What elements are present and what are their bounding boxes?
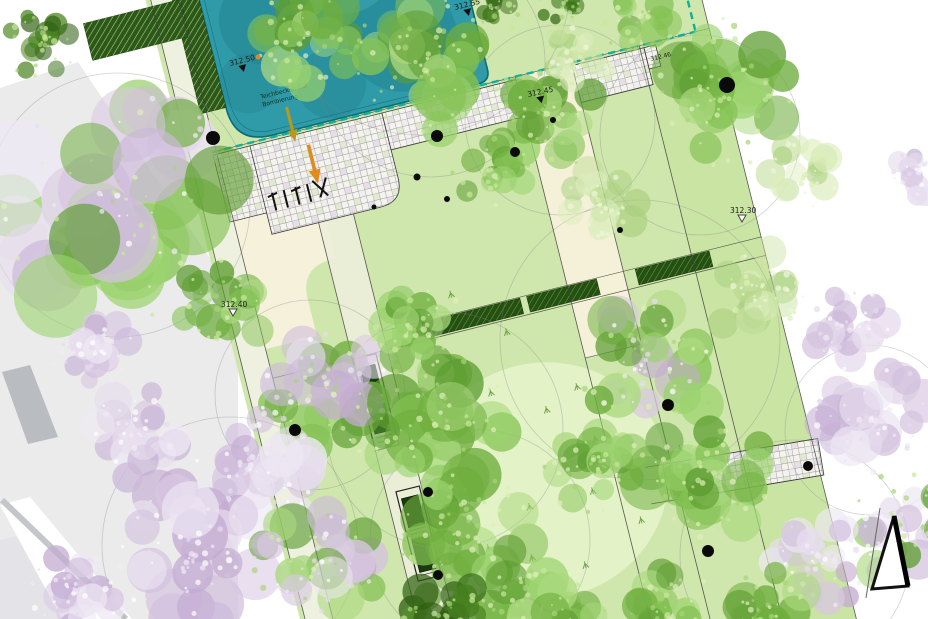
tree-blossom-speckle: [417, 353, 419, 355]
tree-blossom-speckle: [489, 4, 493, 8]
tree-blossom-speckle: [449, 484, 454, 489]
tree-blossom-speckle: [630, 613, 632, 615]
tree-blossom-speckle: [436, 360, 440, 364]
tree-blossom-speckle: [763, 81, 768, 86]
tree-blossom-speckle: [575, 36, 577, 38]
tree-blossom-speckle: [335, 378, 338, 381]
tree-blossom-speckle: [308, 368, 313, 373]
tree-blossom-speckle: [522, 507, 525, 510]
tree-blossom-speckle: [320, 560, 325, 565]
tree-blossom-speckle: [473, 536, 478, 541]
tree-foliage-blob: [892, 366, 921, 395]
tree-blossom-speckle: [64, 361, 67, 364]
tree-blossom-speckle: [821, 562, 824, 565]
tree-blossom-speckle: [132, 409, 138, 415]
tree-blossom-speckle: [853, 547, 859, 553]
tree-blossom-speckle: [606, 232, 610, 236]
tree-blossom-speckle: [47, 45, 50, 48]
tree-blossom-speckle: [438, 410, 442, 414]
tree-blossom-speckle: [111, 200, 115, 204]
tree-blossom-speckle: [96, 336, 100, 340]
tree-blossom-speckle: [759, 305, 761, 307]
tree-blossom-speckle: [814, 170, 816, 172]
tree-trunk-dot: [289, 424, 301, 436]
tree-blossom-speckle: [486, 180, 491, 185]
utility-dot: [256, 55, 261, 60]
tree-blossom-speckle: [791, 571, 794, 574]
tree-blossom-speckle: [193, 553, 199, 559]
tree-blossom-speckle: [640, 365, 643, 368]
tree-blossom-speckle: [813, 545, 818, 550]
tree-blossom-speckle: [743, 506, 748, 511]
tree-blossom-speckle: [114, 459, 119, 464]
tree-blossom-speckle: [682, 481, 686, 485]
tree-blossom-speckle: [356, 405, 360, 409]
tree-blossom-speckle: [120, 368, 124, 372]
tree-blossom-speckle: [428, 435, 432, 439]
tree-blossom-speckle: [122, 441, 127, 446]
tree-blossom-speckle: [299, 577, 303, 581]
tree-blossom-speckle: [770, 270, 776, 276]
tree-blossom-speckle: [572, 484, 578, 490]
tree-blossom-speckle: [726, 518, 730, 522]
tree-blossom-speckle: [436, 613, 441, 618]
tree-foliage-blob: [64, 558, 93, 587]
tree-blossom-speckle: [481, 171, 487, 177]
tree-blossom-speckle: [695, 478, 701, 484]
tree-blossom-speckle: [591, 457, 596, 462]
tree-blossom-speckle: [689, 107, 694, 112]
tree-blossom-speckle: [569, 76, 571, 78]
tree-blossom-speckle: [752, 599, 755, 602]
tree-blossom-speckle: [181, 569, 186, 574]
tree-blossom-speckle: [639, 369, 641, 371]
tree-blossom-speckle: [216, 331, 222, 337]
tree-blossom-speckle: [412, 328, 416, 332]
tree-blossom-speckle: [40, 26, 43, 29]
tree-blossom-speckle: [689, 496, 694, 501]
tree-blossom-speckle: [863, 515, 869, 521]
tree-blossom-speckle: [661, 318, 665, 322]
tree-blossom-speckle: [434, 35, 439, 40]
tree-blossom-speckle: [439, 513, 445, 519]
tree-blossom-speckle: [506, 485, 510, 489]
tree-blossom-speckle: [856, 306, 859, 309]
tree-blossom-speckle: [602, 509, 605, 512]
tree-blossom-speckle: [812, 205, 815, 208]
tree-blossom-speckle: [93, 356, 99, 362]
tree-blossom-speckle: [99, 349, 103, 353]
tree-blossom-speckle: [715, 450, 719, 454]
tree-blossom-speckle: [435, 307, 438, 310]
tree-blossom-speckle: [680, 362, 683, 365]
tree-blossom-speckle: [561, 22, 563, 24]
tree-blossom-speckle: [131, 445, 137, 451]
tree-blossom-speckle: [439, 521, 443, 525]
tree-blossom-speckle: [679, 579, 682, 582]
tree-blossom-speckle: [303, 597, 307, 601]
tree-blossom-speckle: [15, 69, 19, 73]
tree-foliage-blob: [743, 307, 764, 328]
tree-blossom-speckle: [54, 57, 57, 60]
tree-trunk-dot: [803, 461, 813, 471]
tree-blossom-speckle: [856, 417, 862, 423]
tree-blossom-speckle: [670, 389, 676, 395]
tree-blossom-speckle: [865, 333, 871, 339]
tree-blossom-speckle: [328, 424, 331, 427]
tree-blossom-speckle: [400, 429, 402, 431]
tree-blossom-speckle: [442, 347, 445, 350]
tree-blossom-speckle: [133, 233, 137, 237]
tree-blossom-speckle: [798, 159, 800, 161]
tree-blossom-speckle: [373, 324, 379, 330]
tree-blossom-speckle: [834, 578, 836, 580]
tree-blossom-speckle: [730, 283, 736, 289]
tree-blossom-speckle: [118, 409, 121, 412]
tree-blossom-speckle: [187, 566, 190, 569]
tree-blossom-speckle: [120, 420, 123, 423]
tree-blossom-speckle: [24, 21, 26, 23]
tree-blossom-speckle: [646, 404, 652, 410]
tree-blossom-speckle: [603, 206, 608, 211]
tree-blossom-speckle: [869, 553, 872, 556]
tree-blossom-speckle: [456, 48, 460, 52]
tree-blossom-speckle: [764, 259, 766, 261]
tree-blossom-speckle: [89, 345, 95, 351]
tree-blossom-speckle: [226, 551, 230, 555]
tree-blossom-speckle: [407, 513, 410, 516]
tree-blossom-speckle: [687, 520, 689, 522]
tree-blossom-speckle: [549, 157, 554, 162]
tree-blossom-speckle: [603, 610, 605, 612]
tree-foliage-blob: [185, 299, 213, 327]
tree-blossom-speckle: [203, 524, 209, 530]
tree-foliage-blob: [277, 55, 312, 90]
tree-blossom-speckle: [542, 465, 546, 469]
tree-blossom-speckle: [206, 507, 210, 511]
tree-blossom-speckle: [488, 603, 493, 608]
tree-blossom-speckle: [656, 610, 659, 613]
tree-blossom-speckle: [472, 421, 475, 424]
tree-blossom-speckle: [311, 567, 316, 572]
tree-blossom-speckle: [568, 203, 574, 209]
tree-blossom-speckle: [833, 557, 836, 560]
tree-foliage-blob: [498, 492, 539, 533]
tree-blossom-speckle: [571, 64, 576, 69]
tree-blossom-speckle: [235, 286, 238, 289]
tree-blossom-speckle: [596, 185, 599, 188]
tree-blossom-speckle: [327, 579, 330, 582]
tree-blossom-speckle: [326, 513, 329, 516]
site-plan-stage: Teichbecken auf Bombierung: [0, 0, 928, 619]
tree-blossom-speckle: [274, 395, 279, 400]
tree-blossom-speckle: [623, 501, 626, 504]
tree-blossom-speckle: [308, 337, 313, 342]
tree-blossom-speckle: [884, 334, 890, 340]
tree-blossom-speckle: [783, 271, 789, 277]
tree-trunk-dot: [372, 205, 377, 210]
tree-foliage-blob: [402, 574, 438, 610]
tree-blossom-speckle: [322, 375, 327, 380]
tree-blossom-speckle: [151, 562, 153, 564]
tree-blossom-speckle: [535, 137, 538, 140]
tree-blossom-speckle: [239, 284, 242, 287]
tree-blossom-speckle: [727, 96, 732, 101]
tree-blossom-speckle: [469, 593, 475, 599]
tree-blossom-speckle: [348, 367, 354, 373]
tree-blossom-speckle: [136, 516, 140, 520]
tree-blossom-speckle: [652, 298, 658, 304]
tree-blossom-speckle: [603, 452, 608, 457]
tree-blossom-speckle: [34, 63, 38, 67]
tree-blossom-speckle: [407, 297, 413, 303]
tree-blossom-speckle: [793, 311, 796, 314]
tree-blossom-speckle: [213, 293, 219, 299]
tree-blossom-speckle: [172, 248, 178, 254]
tree-blossom-speckle: [582, 59, 585, 62]
tree-blossom-speckle: [443, 396, 448, 401]
tree-blossom-speckle: [436, 27, 442, 33]
tree-foliage-blob: [836, 561, 857, 582]
tree-blossom-speckle: [859, 438, 862, 441]
tree-blossom-speckle: [309, 535, 311, 537]
tree-blossom-speckle: [455, 531, 461, 537]
tree-foliage-blob: [708, 308, 738, 338]
tree-blossom-speckle: [380, 417, 383, 420]
tree-blossom-speckle: [900, 400, 905, 405]
tree-blossom-speckle: [839, 323, 844, 328]
tree-blossom-speckle: [796, 162, 801, 167]
tree-blossom-speckle: [857, 499, 860, 502]
tree-blossom-speckle: [899, 513, 904, 518]
tree-blossom-speckle: [921, 402, 923, 404]
tree-blossom-speckle: [718, 428, 724, 434]
tree-blossom-speckle: [12, 24, 18, 30]
tree-blossom-speckle: [717, 97, 723, 103]
tree-blossom-speckle: [847, 418, 850, 421]
tree-blossom-speckle: [385, 438, 391, 444]
tree-blossom-speckle: [323, 75, 328, 80]
tree-blossom-speckle: [423, 533, 428, 538]
tree-blossom-speckle: [692, 486, 695, 489]
tree-blossom-speckle: [91, 559, 94, 562]
tree-blossom-speckle: [722, 17, 725, 20]
tree-blossom-speckle: [242, 495, 244, 497]
tree-blossom-speckle: [560, 5, 564, 9]
tree-blossom-speckle: [354, 536, 357, 539]
tree-blossom-speckle: [53, 600, 56, 603]
tree-trunk-dot: [433, 570, 443, 580]
tree-blossom-speckle: [525, 593, 530, 598]
tree-blossom-speckle: [469, 547, 475, 553]
tree-blossom-speckle: [425, 323, 430, 328]
tree-blossom-speckle: [577, 2, 580, 5]
tree-blossom-speckle: [283, 455, 286, 458]
tree-blossom-speckle: [787, 315, 793, 321]
tree-blossom-speckle: [606, 67, 610, 71]
tree-blossom-speckle: [840, 460, 843, 463]
tree-blossom-speckle: [493, 479, 498, 484]
tree-blossom-speckle: [900, 154, 904, 158]
tree-blossom-speckle: [174, 166, 177, 169]
tree-blossom-speckle: [102, 405, 105, 408]
tree-blossom-speckle: [402, 44, 408, 50]
tree-blossom-speckle: [94, 432, 98, 436]
tree-blossom-speckle: [793, 305, 795, 307]
tree-blossom-speckle: [609, 41, 612, 44]
tree-blossom-speckle: [893, 434, 896, 437]
tree-blossom-speckle: [756, 285, 758, 287]
tree-blossom-speckle: [731, 278, 733, 280]
tree-blossom-speckle: [813, 566, 819, 572]
tree-blossom-speckle: [596, 204, 598, 206]
tree-blossom-speckle: [144, 419, 148, 423]
tree-blossom-speckle: [110, 447, 114, 451]
tree-blossom-speckle: [865, 401, 867, 403]
tree-blossom-speckle: [38, 568, 41, 571]
tree-blossom-speckle: [445, 426, 448, 429]
tree-blossom-speckle: [692, 445, 695, 448]
tree-blossom-speckle: [640, 380, 646, 386]
tree-blossom-speckle: [875, 412, 877, 414]
tree-blossom-speckle: [544, 140, 547, 143]
tree-blossom-speckle: [200, 565, 205, 570]
tree-blossom-speckle: [438, 45, 441, 48]
tree-blossom-speckle: [126, 214, 128, 216]
tree-blossom-speckle: [782, 550, 784, 552]
tree-blossom-speckle: [823, 350, 825, 352]
tree-blossom-speckle: [775, 615, 778, 618]
tree-blossom-speckle: [510, 11, 513, 14]
tree-trunk-dot: [444, 196, 450, 202]
tree-blossom-speckle: [303, 53, 308, 58]
tree-blossom-speckle: [864, 414, 869, 419]
tree-blossom-speckle: [641, 10, 644, 13]
tree-blossom-speckle: [426, 298, 430, 302]
tree-blossom-speckle: [630, 337, 636, 343]
tree-blossom-speckle: [644, 358, 648, 362]
tree-blossom-speckle: [774, 158, 777, 161]
tree-blossom-speckle: [410, 440, 413, 443]
tree-blossom-speckle: [150, 313, 154, 317]
tree-blossom-speckle: [870, 292, 874, 296]
tree-blossom-speckle: [619, 368, 625, 374]
tree-blossom-speckle: [494, 87, 499, 92]
tree-blossom-speckle: [684, 577, 688, 581]
tree-foliage-blob: [538, 9, 550, 21]
tree-blossom-speckle: [755, 585, 759, 589]
tree-blossom-speckle: [265, 373, 271, 379]
tree-blossom-speckle: [277, 583, 279, 585]
tree-blossom-speckle: [431, 363, 434, 366]
tree-blossom-speckle: [775, 297, 778, 300]
tree-blossom-speckle: [755, 113, 761, 119]
tree-blossom-speckle: [564, 49, 570, 55]
tree-blossom-speckle: [157, 542, 160, 545]
tree-blossom-speckle: [571, 5, 574, 8]
tree-blossom-speckle: [446, 573, 451, 578]
tree-blossom-speckle: [602, 459, 606, 463]
tree-blossom-speckle: [604, 466, 606, 468]
tree-foliage-blob: [907, 153, 924, 170]
tree-blossom-speckle: [606, 223, 612, 229]
tree-blossom-speckle: [197, 126, 203, 132]
tree-blossom-speckle: [547, 449, 552, 454]
tree-canopy: [888, 149, 928, 207]
tree-blossom-speckle: [589, 462, 593, 466]
tree-blossom-speckle: [279, 439, 282, 442]
tree-blossom-speckle: [393, 369, 399, 375]
tree-blossom-speckle: [790, 293, 792, 295]
tree-blossom-speckle: [843, 404, 846, 407]
tree-blossom-speckle: [905, 446, 910, 451]
tree-blossom-speckle: [32, 605, 38, 611]
tree-blossom-speckle: [846, 440, 849, 443]
tree-blossom-speckle: [67, 346, 70, 349]
tree-blossom-speckle: [750, 284, 753, 287]
tree-blossom-speckle: [461, 33, 466, 38]
tree-blossom-speckle: [512, 118, 516, 122]
tree-blossom-speckle: [69, 172, 72, 175]
tree-blossom-speckle: [493, 203, 497, 207]
tree-blossom-speckle: [310, 355, 315, 360]
tree-foliage-blob: [159, 425, 191, 457]
tree-blossom-speckle: [421, 316, 426, 321]
tree-blossom-speckle: [413, 455, 416, 458]
tree-blossom-speckle: [664, 592, 670, 598]
tree-blossom-speckle: [323, 332, 328, 337]
tree-blossom-speckle: [741, 68, 745, 72]
tree-blossom-speckle: [506, 1, 512, 7]
tree-blossom-speckle: [380, 345, 382, 347]
tree-blossom-speckle: [871, 469, 877, 475]
tree-blossom-speckle: [312, 558, 317, 563]
tree-blossom-speckle: [712, 163, 716, 167]
tree-foliage-blob: [461, 149, 485, 173]
tree-blossom-speckle: [572, 114, 578, 120]
tree-blossom-speckle: [866, 325, 869, 328]
tree-blossom-speckle: [214, 306, 220, 312]
tree-blossom-speckle: [828, 157, 833, 162]
tree-foliage-blob: [782, 572, 821, 611]
tree-blossom-speckle: [669, 121, 674, 126]
tree-blossom-speckle: [877, 541, 880, 544]
tree-blossom-speckle: [570, 69, 574, 73]
tree-blossom-speckle: [63, 577, 66, 580]
tree-blossom-speckle: [316, 50, 319, 53]
tree-blossom-speckle: [768, 605, 772, 609]
tree-blossom-speckle: [549, 126, 555, 132]
tree-blossom-speckle: [519, 577, 523, 581]
tree-blossom-speckle: [836, 566, 838, 568]
tree-blossom-speckle: [235, 474, 239, 478]
tree-blossom-speckle: [673, 384, 676, 387]
tree-blossom-speckle: [600, 78, 603, 81]
tree-blossom-speckle: [416, 393, 421, 398]
tree-blossom-speckle: [441, 564, 443, 566]
tree-blossom-speckle: [452, 44, 455, 47]
tree-blossom-speckle: [197, 116, 201, 120]
tree-blossom-speckle: [519, 96, 522, 99]
tree-foliage-blob: [112, 462, 142, 492]
tree-blossom-speckle: [238, 460, 243, 465]
tree-blossom-speckle: [704, 450, 710, 456]
tree-blossom-speckle: [499, 609, 505, 615]
tree-blossom-speckle: [256, 300, 258, 302]
tree-blossom-speckle: [61, 342, 65, 346]
tree-foliage-blob: [585, 386, 614, 415]
tree-blossom-speckle: [149, 549, 151, 551]
